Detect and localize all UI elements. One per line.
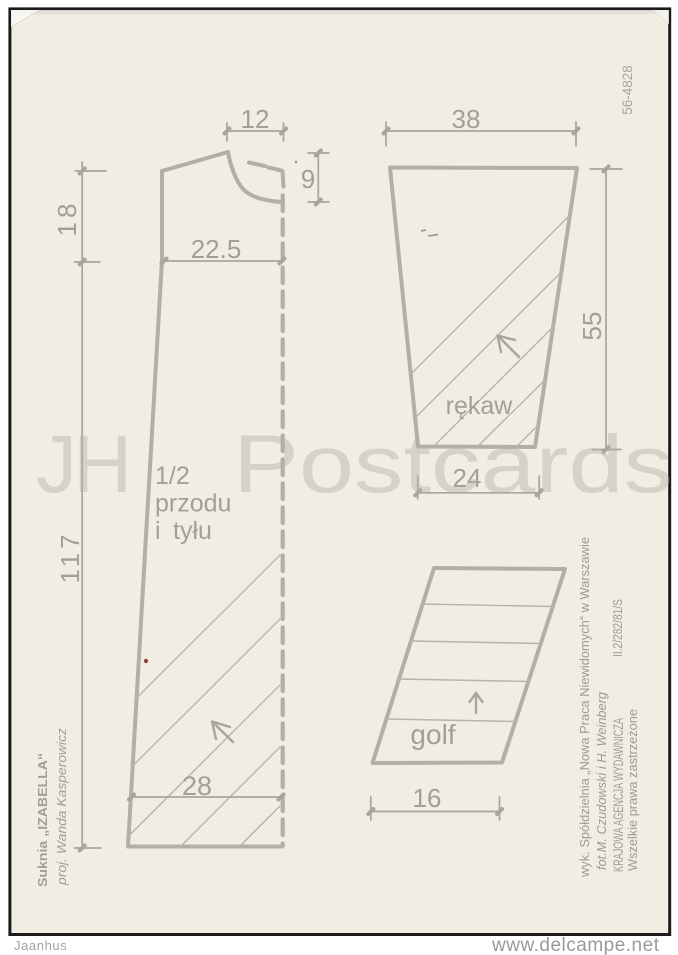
- svg-text:www.delcampe.net: www.delcampe.net: [491, 935, 660, 955]
- svg-text:i tyłu: i tyłu: [155, 517, 212, 545]
- svg-text:fot.M. Czudowski i H. Weinberg: fot.M. Czudowski i H. Weinberg: [595, 692, 609, 870]
- svg-text:16: 16: [413, 783, 442, 813]
- svg-text:rękaw: rękaw: [446, 392, 514, 420]
- svg-text:55: 55: [577, 312, 607, 341]
- svg-text:Postcards: Postcards: [233, 419, 673, 510]
- svg-text:Wszelkie prawa zastrzeżone: Wszelkie prawa zastrzeżone: [626, 709, 640, 871]
- svg-text:1/2: 1/2: [155, 462, 190, 490]
- svg-text:12: 12: [241, 104, 270, 134]
- svg-text:117: 117: [55, 535, 85, 584]
- svg-text:Jaanhus: Jaanhus: [14, 938, 67, 953]
- svg-text:proj. Wanda Kasperowicz: proj. Wanda Kasperowicz: [54, 727, 69, 886]
- svg-text:28: 28: [182, 771, 212, 801]
- svg-text:56-4828: 56-4828: [620, 65, 635, 115]
- svg-text:JH: JH: [36, 419, 128, 510]
- svg-text:wyk. Spółdzielnia „Nowa Praca: wyk. Spółdzielnia „Nowa Praca Niewidomyc…: [578, 537, 592, 878]
- svg-text:golf: golf: [410, 719, 455, 750]
- svg-text:Suknia „IZABELLA“: Suknia „IZABELLA“: [35, 753, 50, 887]
- svg-text:KRAJOWA AGENCJA WYDAWNICZA: KRAJOWA AGENCJA WYDAWNICZA: [611, 718, 626, 872]
- svg-text:22.5: 22.5: [191, 234, 242, 264]
- svg-text:II.2/282/81/S: II.2/282/81/S: [611, 599, 625, 657]
- svg-text:9: 9: [301, 164, 315, 194]
- svg-text:przodu: przodu: [155, 490, 231, 518]
- svg-text:38: 38: [452, 104, 481, 134]
